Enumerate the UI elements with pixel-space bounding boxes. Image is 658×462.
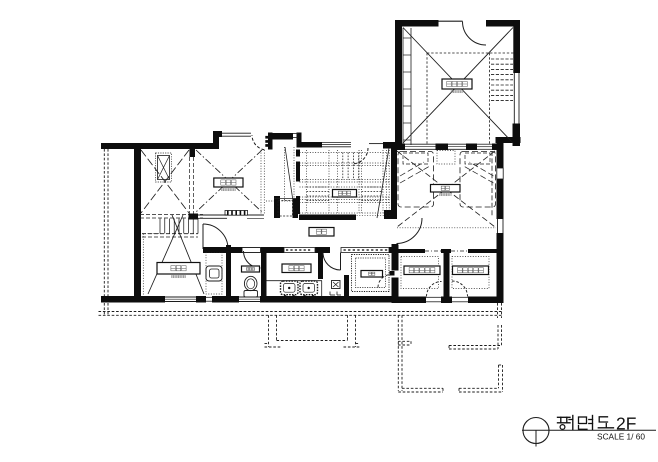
svg-text:2F: 2F	[616, 414, 636, 434]
svg-text:SCALE 1/ 60: SCALE 1/ 60	[597, 432, 645, 442]
